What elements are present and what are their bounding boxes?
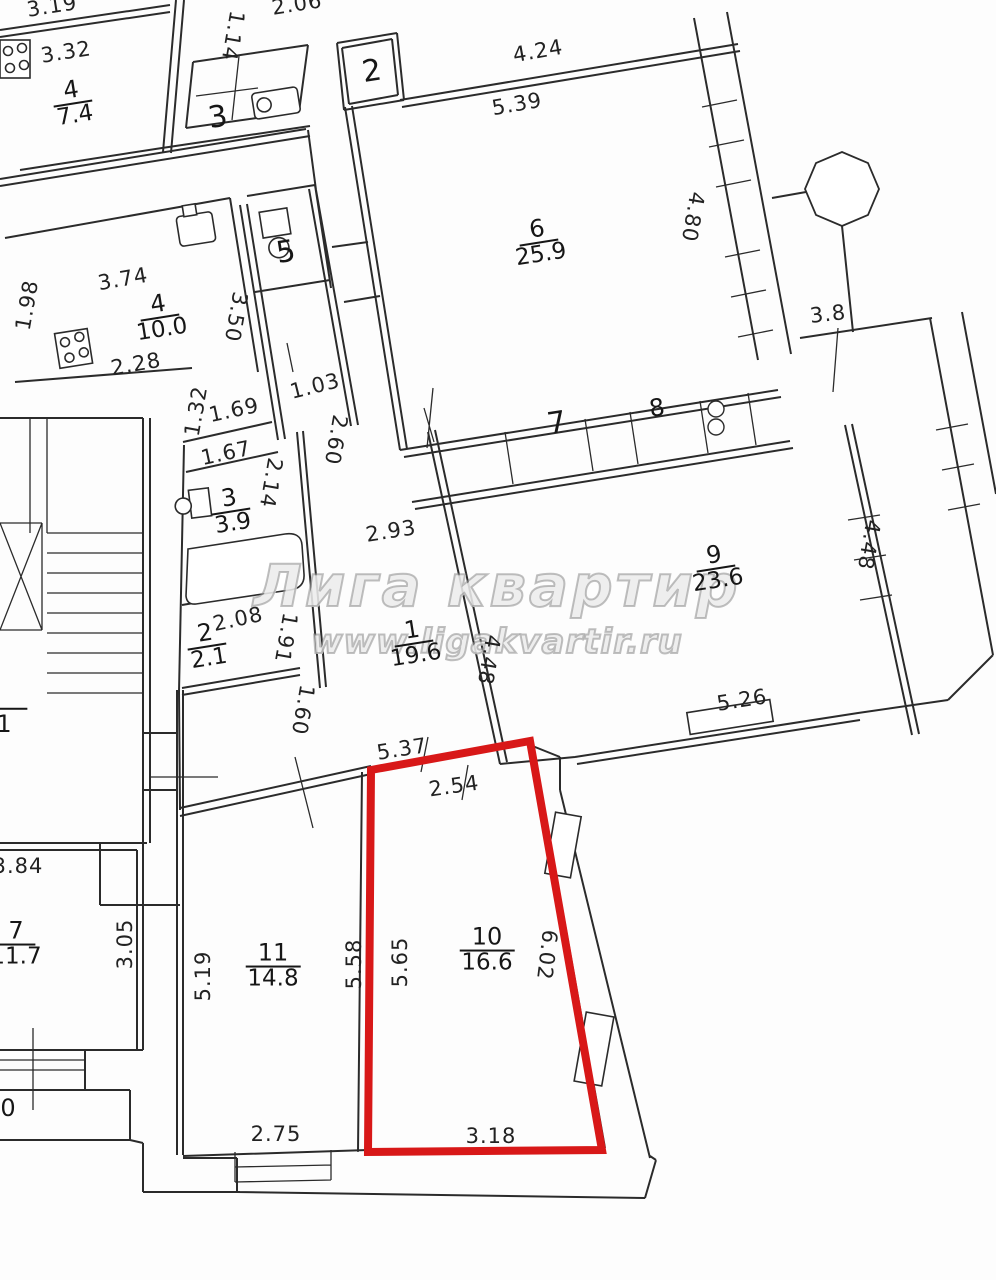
room-label-4a: 4 7.4 — [50, 75, 97, 131]
room-label-1: 1 19.6 — [385, 614, 444, 672]
room-label-4b: 4 10.0 — [131, 288, 190, 346]
room-label-3b: 3 3.9 — [208, 483, 255, 539]
room-label-partial-1: 1 — [0, 708, 28, 736]
room-label-9: 9 23.6 — [687, 539, 746, 597]
stove-icon — [0, 40, 30, 78]
dimension-label: 3.84 — [0, 854, 43, 878]
fixture-circle — [708, 401, 724, 417]
dimension-label: 3.18 — [466, 1124, 517, 1148]
detail-lines — [0, 56, 980, 1182]
floor-plan: Лига квартир www.ligakvartir.ru 3.19 2.0… — [0, 0, 996, 1280]
dimension-label: 5.65 — [388, 937, 412, 988]
dimension-label: 5.58 — [342, 939, 366, 990]
room-label-partial-0: 0 — [0, 1096, 15, 1120]
room-label-7b: 7 11.7 — [0, 919, 42, 970]
room-label-10-highlighted: 10 16.6 — [460, 925, 515, 976]
room-label-11: 11 14.8 — [246, 941, 301, 992]
sink-icon — [251, 87, 301, 120]
room-label-2b: 2 2.1 — [184, 618, 231, 674]
dimension-label: 3.05 — [113, 919, 137, 970]
sink-icon — [174, 201, 216, 246]
room-label-6: 6 25.9 — [510, 213, 569, 271]
toilet-icon — [173, 488, 211, 520]
dimension-label: 2.75 — [251, 1122, 302, 1146]
fixture-circle — [708, 419, 724, 435]
dimension-label: 5.19 — [191, 951, 215, 1002]
dimension-label: 3.8 — [809, 300, 848, 328]
stove-icon — [55, 329, 93, 369]
bathtub-icon — [186, 534, 304, 604]
column-icon — [805, 152, 879, 226]
